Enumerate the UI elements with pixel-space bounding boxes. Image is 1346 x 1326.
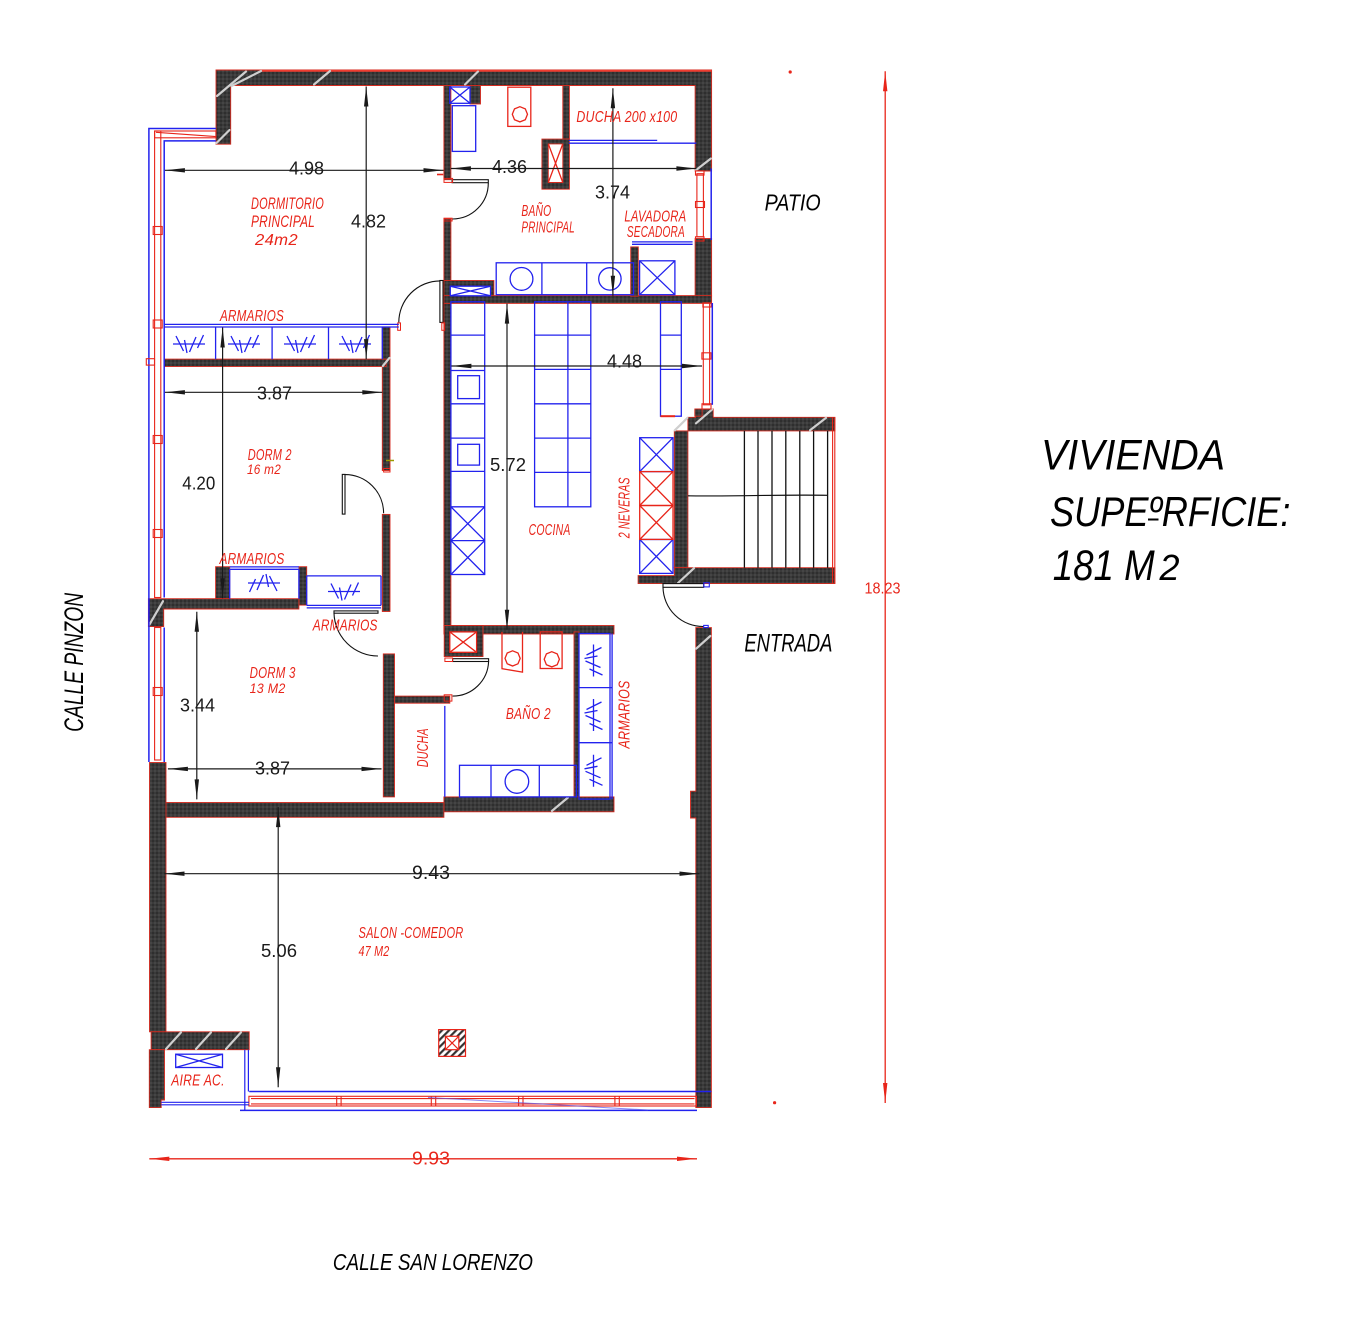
svg-text:3.74: 3.74 [595, 183, 630, 203]
svg-text:4.20: 4.20 [182, 474, 215, 494]
svg-text:ARMARIOS: ARMARIOS [617, 680, 634, 749]
svg-text:BAÑO 2: BAÑO 2 [506, 704, 551, 723]
svg-text:ARMARIOS: ARMARIOS [312, 618, 378, 635]
svg-text:9.93: 9.93 [412, 1149, 450, 1169]
svg-text:DUCHA: DUCHA [415, 728, 432, 767]
svg-text:4.36: 4.36 [492, 157, 527, 177]
svg-text:2 NEVERAS: 2 NEVERAS [616, 477, 633, 539]
svg-text:SALON -COMEDOR: SALON -COMEDOR [359, 925, 464, 942]
svg-text:16 m2: 16 m2 [247, 461, 281, 477]
svg-text:CALLE PINZON: CALLE PINZON [59, 593, 89, 732]
svg-text:DORMITORIO: DORMITORIO [251, 194, 324, 213]
svg-text:BAÑO: BAÑO [521, 201, 551, 220]
svg-text:ARMARIOS: ARMARIOS [219, 551, 285, 568]
svg-text:CALLE SAN LORENZO: CALLE SAN LORENZO [333, 1249, 533, 1275]
svg-text:COCINA: COCINA [529, 522, 571, 539]
svg-text:181 M: 181 M [1053, 542, 1155, 590]
svg-text:SUPEºRFICIE:: SUPEºRFICIE: [1050, 488, 1291, 535]
svg-text:4.48: 4.48 [607, 352, 642, 372]
svg-text:DUCHA 200 x100: DUCHA 200 x100 [576, 109, 677, 126]
svg-text:18.23: 18.23 [865, 581, 901, 598]
svg-text:4.82: 4.82 [351, 212, 386, 232]
svg-text:AIRE AC.: AIRE AC. [170, 1072, 224, 1089]
svg-text:PRINCIPAL: PRINCIPAL [251, 212, 315, 231]
svg-text:VIVIENDA: VIVIENDA [1041, 431, 1225, 479]
svg-text:PRINCIPAL: PRINCIPAL [521, 220, 575, 237]
svg-text:3.44: 3.44 [180, 696, 215, 716]
svg-text:3.87: 3.87 [257, 384, 292, 404]
svg-text:9.43: 9.43 [412, 863, 450, 884]
svg-text:5.06: 5.06 [261, 941, 297, 961]
svg-text:47 M2: 47 M2 [359, 944, 390, 960]
svg-text:2: 2 [1159, 547, 1180, 588]
svg-text:13 M2: 13 M2 [250, 680, 286, 696]
svg-text:4.98: 4.98 [289, 159, 324, 179]
svg-text:ARMARIOS: ARMARIOS [219, 308, 284, 325]
svg-text:SECADORA: SECADORA [627, 224, 685, 241]
svg-text:ENTRADA: ENTRADA [744, 629, 832, 657]
svg-text:PATIO: PATIO [765, 189, 821, 215]
svg-text:5.72: 5.72 [490, 455, 526, 475]
svg-text:3.87: 3.87 [255, 759, 290, 779]
svg-text:24m2: 24m2 [254, 232, 298, 249]
